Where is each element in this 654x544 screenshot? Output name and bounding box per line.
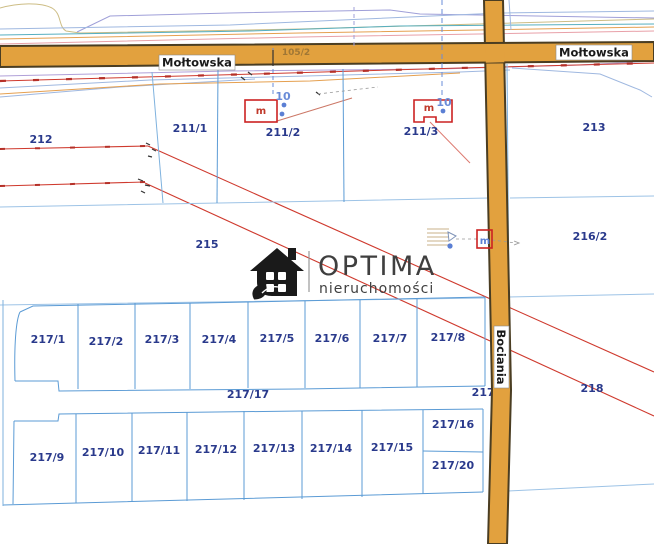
parcel-label-215-5: 215 bbox=[196, 238, 219, 251]
marker-labels: m10m10m bbox=[256, 90, 490, 247]
parcel-label-217-4-10: 217/4 bbox=[202, 333, 237, 346]
map-marker-m-2: m bbox=[424, 103, 434, 114]
logo-brand-text: OPTIMA bbox=[318, 251, 437, 282]
parcel-label-217-10-19: 217/10 bbox=[82, 446, 125, 459]
street-label-moltowska-west: Mołtowska bbox=[159, 55, 235, 70]
parcel-label-211-3-3: 211/3 bbox=[404, 125, 439, 138]
logo-house-icon bbox=[250, 248, 304, 300]
parcel-label-217-7-13: 217/7 bbox=[373, 332, 408, 345]
parcel-label-217-2-8: 217/2 bbox=[89, 335, 124, 348]
parcel-label-217-3-9: 217/3 bbox=[145, 333, 180, 346]
utility-dot-0 bbox=[282, 103, 287, 108]
parcel-label-217-9-18: 217/9 bbox=[30, 451, 65, 464]
street-label-bociania: Bociania bbox=[494, 326, 509, 388]
parcel-label-218-17: 218 bbox=[581, 382, 604, 395]
watermark-logo: OPTIMA nieruchomości bbox=[250, 248, 437, 300]
map-marker-m-4: m bbox=[480, 236, 490, 247]
parcel-label-211-1-1: 211/1 bbox=[173, 122, 208, 135]
street-name-moltowska-east: Mołtowska bbox=[559, 46, 629, 60]
parcel-label-217-12-21: 217/12 bbox=[195, 443, 237, 456]
road-junction-patch bbox=[485, 44, 504, 63]
logo-subtitle-text: nieruchomości bbox=[319, 281, 434, 297]
street-name-moltowska-west: Mołtowska bbox=[162, 56, 232, 70]
parcel-label-217-17-15: 217/17 bbox=[227, 388, 269, 401]
parcel-label-217-15-24: 217/15 bbox=[371, 441, 413, 454]
parcel-label-217-20-26: 217/20 bbox=[432, 459, 475, 472]
parcel-label-217-13-22: 217/13 bbox=[253, 442, 295, 455]
utility-dot-1 bbox=[280, 112, 285, 117]
utility-dot-2 bbox=[441, 109, 446, 114]
map-marker-10-1: 10 bbox=[275, 90, 291, 103]
parcel-label-217-6-12: 217/6 bbox=[315, 332, 350, 345]
cadastral-map: 217/2 212211/1211/2211/3213215216/2217/1… bbox=[0, 0, 654, 544]
parcel-label-213-4: 213 bbox=[583, 121, 606, 134]
parcel-label-217-8-14: 217/8 bbox=[431, 331, 466, 344]
utility-lines-below-road bbox=[0, 61, 654, 163]
map-marker-10-3: 10 bbox=[436, 96, 452, 109]
parcel-label-217-1-7: 217/1 bbox=[31, 333, 66, 346]
decor-lines-top bbox=[0, 0, 654, 44]
red-survey-lines bbox=[0, 72, 654, 416]
parcel-label-217-11-20: 217/11 bbox=[138, 444, 180, 457]
map-canvas: 217/2 212211/1211/2211/3213215216/2217/1… bbox=[0, 0, 654, 544]
parcel-label-212-0: 212 bbox=[30, 133, 53, 146]
street-label-moltowska-east: Mołtowska bbox=[556, 45, 632, 60]
street-name-bociania: Bociania bbox=[494, 329, 508, 384]
parcel-label-217-16-25: 217/16 bbox=[432, 418, 475, 431]
parcel-label-217-5-11: 217/5 bbox=[260, 332, 295, 345]
buildings bbox=[245, 100, 492, 248]
utility-dot-3 bbox=[448, 244, 453, 249]
parcel-label-211-2-2: 211/2 bbox=[266, 126, 301, 139]
road-parcel-label: 105/2 bbox=[282, 48, 310, 58]
parcel-label-217-14-23: 217/14 bbox=[310, 442, 353, 455]
map-marker-m-0: m bbox=[256, 106, 266, 117]
parcel-label-216-2-6: 216/2 bbox=[573, 230, 608, 243]
